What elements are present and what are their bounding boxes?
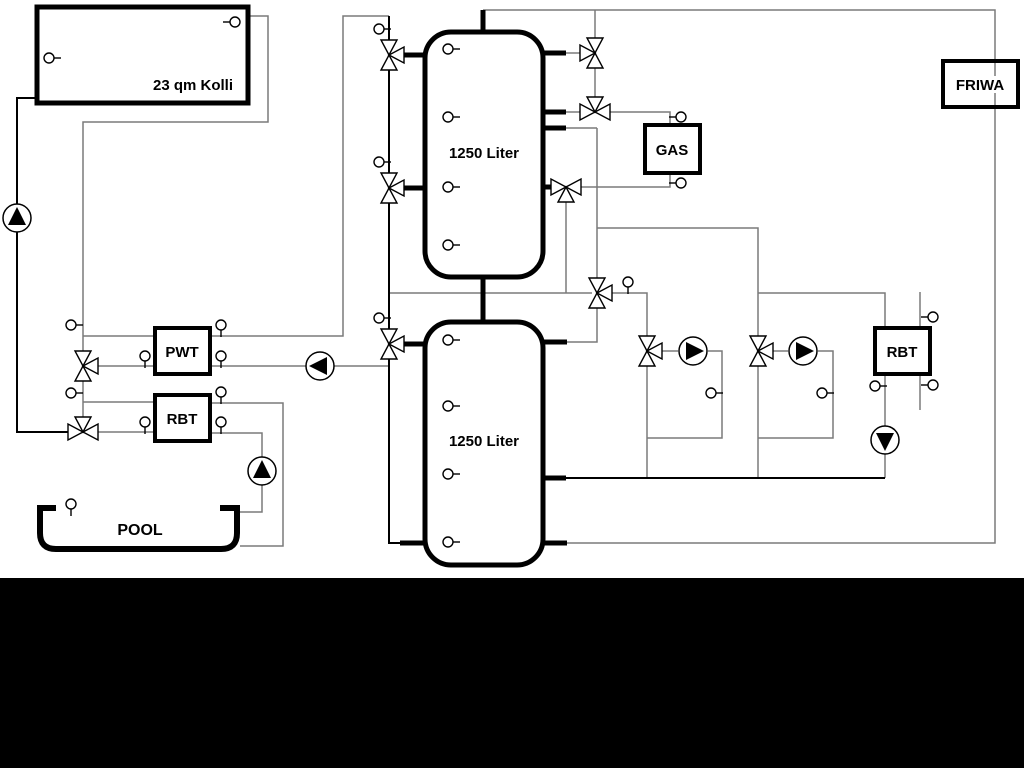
sensor-pwt-right-top-icon	[216, 320, 226, 337]
valve-gas-supply	[580, 97, 610, 120]
sensor-circuit1-icon	[706, 388, 723, 398]
valve-pwt	[75, 351, 98, 381]
sensor-rbt2-bottom-icon	[921, 380, 938, 390]
pump-rbt2-icon	[871, 426, 899, 454]
rbt-right-label: RBT	[887, 344, 918, 361]
pump-circuit1-icon	[679, 337, 707, 365]
pump-tank-charge-icon	[306, 352, 334, 380]
hydraulic-schematic: 23 qm Kolli 1250 Liter 1250 Liter GAS FR…	[0, 0, 1024, 768]
sensor-gas-return-icon	[669, 178, 686, 188]
pipe-gas-out	[581, 173, 670, 187]
pump-pool-icon	[248, 457, 276, 485]
tank2-label: 1250 Liter	[449, 433, 519, 450]
pool-label: POOL	[117, 522, 163, 539]
valve-gas-return	[551, 179, 581, 202]
valve-tank1-mid-left	[381, 173, 404, 203]
tank1-label: 1250 Liter	[449, 145, 519, 162]
pipe-to-circuit2	[597, 228, 758, 336]
sensor-pwt-line-icon	[66, 320, 83, 330]
valve-distribution	[589, 278, 612, 308]
sensor-rbt-right-top-icon	[216, 387, 226, 404]
sensor-pool-icon	[66, 499, 76, 516]
sensor-distribution-icon	[623, 277, 633, 294]
gas-label: GAS	[656, 142, 689, 159]
pipe-top-header	[483, 10, 995, 543]
valve-circuit1	[639, 336, 662, 366]
pipe-to-rbt2	[758, 293, 885, 328]
bottom-black-band	[0, 578, 1024, 768]
pump-circuit2-icon	[789, 337, 817, 365]
valve-circuit2	[750, 336, 773, 366]
valve-tank1-top-right	[580, 38, 603, 68]
sensor-gas-supply-icon	[669, 112, 686, 122]
sensor-rbt-right-bottom-icon	[216, 417, 226, 434]
pipe-main-column	[389, 16, 403, 543]
schematic-page: 23 qm Kolli 1250 Liter 1250 Liter GAS FR…	[0, 0, 1024, 768]
pipe-collector-return	[17, 98, 68, 432]
friwa-label: FRIWA	[956, 77, 1004, 94]
sensor-rbt-line-icon	[66, 388, 83, 398]
pipe-pump-to-pool	[240, 485, 262, 512]
pump-solar-icon	[3, 204, 31, 232]
pipe-rbt-to-pool-pump	[210, 433, 262, 457]
sensor-circuit2-icon	[817, 388, 834, 398]
valve-pool	[68, 417, 98, 440]
valve-tank2-top-left	[381, 329, 404, 359]
pipe-to-tank2-top	[567, 308, 597, 342]
pwt-label: PWT	[165, 344, 198, 361]
rbt-left-label: RBT	[167, 411, 198, 428]
collector-label: 23 qm Kolli	[153, 77, 233, 94]
pipe-to-circuit1	[612, 293, 647, 336]
valve-tank1-top-left	[381, 40, 404, 70]
sensor-rbt2-top-icon	[921, 312, 938, 322]
